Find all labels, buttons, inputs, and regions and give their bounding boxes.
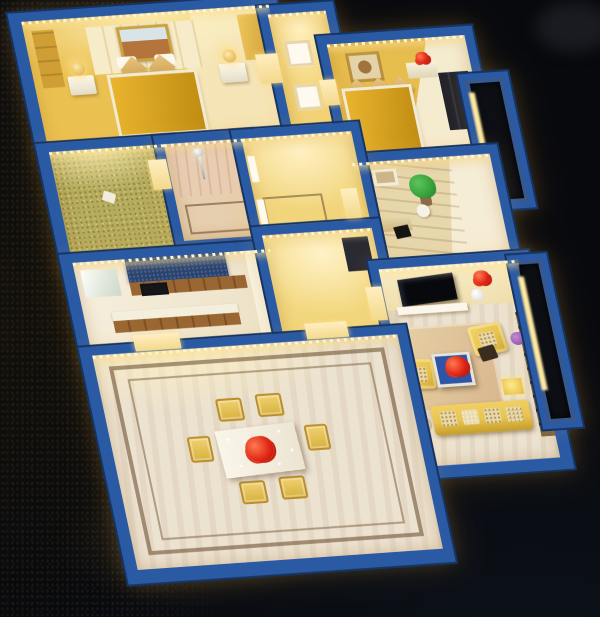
door-frame <box>293 83 324 110</box>
nightstand-right <box>218 62 248 83</box>
small-wall-frame <box>372 168 400 186</box>
black-cooktop <box>140 282 169 296</box>
red-flower-arrangement <box>444 356 470 377</box>
door-jamb <box>247 156 259 182</box>
double-bed-gold-quilt <box>110 72 206 135</box>
blurred-object-top-right <box>536 2 600 52</box>
white-fridge-panel <box>80 268 122 298</box>
white-dining-table <box>214 422 305 479</box>
room-dining <box>78 325 456 585</box>
patterned-cushion <box>483 407 502 423</box>
patterned-cushion <box>505 406 524 422</box>
dining-chair <box>278 475 309 500</box>
led-strip <box>268 11 326 18</box>
door-frame <box>284 40 315 67</box>
wine-glasses <box>226 438 230 441</box>
door-foyer-dining <box>304 321 349 340</box>
dining-chair <box>254 393 285 418</box>
photo-scene <box>0 0 600 617</box>
dining-chair <box>238 480 269 505</box>
patterned-cushion <box>439 411 458 427</box>
led-strip <box>327 35 465 48</box>
dining-chair <box>215 397 246 422</box>
red-flower-centerpiece <box>243 435 277 464</box>
led-strip <box>241 131 351 142</box>
patterned-cushion <box>461 409 480 425</box>
door-kitchen-dining <box>132 333 181 352</box>
gold-side-table <box>501 378 524 395</box>
blue-coffee-table <box>431 351 476 387</box>
nightstand-left <box>67 75 97 96</box>
